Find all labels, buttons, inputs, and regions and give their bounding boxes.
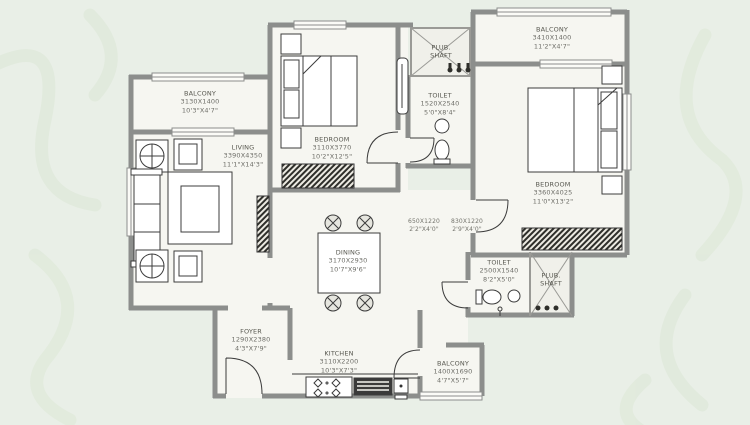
room-name: TOILET xyxy=(421,91,460,99)
room-label-foyer: FOYER 1290X2380 4'3"X7'9" xyxy=(232,327,271,352)
room-label-plub-shaft-right: PLUB. SHAFT xyxy=(540,272,562,289)
room-label-balcony-bottom: BALCONY 1400X1690 4'7"X5'7" xyxy=(434,359,473,384)
room-label-living: LIVING 3390X4350 11'1"X14'3" xyxy=(223,143,263,168)
pipe-symbols xyxy=(448,63,471,73)
room-dim-ft: 2'2"X4'0" xyxy=(408,226,440,234)
room-dim-mm: 2500X1540 xyxy=(480,267,519,275)
room-name: TOILET xyxy=(480,258,519,266)
room-dim-ft: 8'2"X5'0" xyxy=(480,275,519,283)
room-dim-ft: 10'3"X4'7" xyxy=(181,106,220,114)
room-label-bedroom-1: BEDROOM 3110X3770 10'2"X12'5" xyxy=(312,135,352,160)
floor-plan-drawing xyxy=(0,0,750,425)
room-dim-mm: 830X1220 xyxy=(451,218,483,226)
room-label-toilet-bottom: TOILET 2500X1540 8'2"X5'0" xyxy=(480,258,519,283)
room-name: SHAFT xyxy=(430,52,452,60)
hob-icon xyxy=(306,377,352,397)
room-name: FOYER xyxy=(232,327,271,335)
room-name: BALCONY xyxy=(533,25,572,33)
room-label-kitchen: KITCHEN 3110X2200 10'3"X7'3" xyxy=(320,349,359,374)
double-bed-icon xyxy=(528,88,622,172)
room-dim-ft: 4'7"X5'7" xyxy=(434,376,473,384)
room-label-balcony-top-left: BALCONY 3130X1400 10'3"X4'7" xyxy=(181,89,220,114)
nightstand-icon xyxy=(602,176,622,194)
room-dim-mm: 1290X2380 xyxy=(232,336,271,344)
room-name: PLUB. xyxy=(540,272,562,280)
side-table-icon xyxy=(136,250,168,282)
wc-icon xyxy=(434,140,450,164)
room-dim-ft: 11'2"X4'7" xyxy=(533,42,572,50)
room-dim-mm: 3410X1400 xyxy=(533,34,572,42)
room-dim-ft: 4'3"X7'9" xyxy=(232,344,271,352)
room-dim-ft: 10'2"X12'5" xyxy=(312,152,352,160)
room-label-dining: DINING 3170X2930 10'7"X9'6" xyxy=(329,248,368,273)
nightstand-icon xyxy=(281,34,301,54)
room-dim-mm: 3360X4025 xyxy=(533,189,573,197)
armchair-icon xyxy=(174,251,202,282)
room-label-balcony-top-right: BALCONY 3410X1400 11'2"X4'7" xyxy=(533,25,572,50)
room-dim-ft: 5'0"X8'4" xyxy=(421,108,460,116)
pipe-symbols xyxy=(536,306,559,311)
room-dim-ft: 2'9"X4'0" xyxy=(451,226,483,234)
room-dim-mm: 1520X2540 xyxy=(421,100,460,108)
room-dim-mm: 3110X3770 xyxy=(312,144,352,152)
room-label-toilet-top: TOILET 1520X2540 5'0"X8'4" xyxy=(421,91,460,116)
room-dim-mm: 1400X1690 xyxy=(434,368,473,376)
tv-unit-icon xyxy=(257,196,269,252)
room-dim-mm: 3390X4350 xyxy=(223,152,263,160)
room-name: PLUB. xyxy=(430,44,452,52)
room-dim-ft: 11'0"X13'2" xyxy=(533,197,573,205)
wardrobe-icon xyxy=(522,228,622,250)
room-name: LIVING xyxy=(223,143,263,151)
washbasin-icon xyxy=(508,290,520,302)
coffee-table-icon xyxy=(168,172,232,244)
room-dim-mm: 3110X2200 xyxy=(320,358,359,366)
washbasin-icon xyxy=(435,119,449,133)
room-name: BALCONY xyxy=(181,89,220,97)
room-name: SHAFT xyxy=(540,280,562,288)
room-dim-ft: 10'3"X7'3" xyxy=(320,366,359,374)
room-name: BEDROOM xyxy=(312,135,352,143)
nightstand-icon xyxy=(281,128,301,148)
room-dim-ft: 10'7"X9'6" xyxy=(329,265,368,273)
room-name: BEDROOM xyxy=(533,180,573,188)
room-name: BALCONY xyxy=(434,359,473,367)
room-dim-mm: 3170X2930 xyxy=(329,257,368,265)
room-name: DINING xyxy=(329,248,368,256)
room-dim-ft: 11'1"X14'3" xyxy=(223,160,263,168)
wc-icon xyxy=(476,290,501,304)
nightstand-icon xyxy=(602,66,622,84)
room-dim-mm: 3130X1400 xyxy=(181,98,220,106)
passage-dim-label: 830X1220 2'9"X4'0" xyxy=(451,218,483,234)
room-label-plub-shaft-top: PLUB. SHAFT xyxy=(430,44,452,61)
passage-dim-label: 650X1220 2'2"X4'0" xyxy=(408,218,440,234)
room-label-bedroom-2: BEDROOM 3360X4025 11'0"X13'2" xyxy=(533,180,573,205)
floor-plan-page: BALCONY 3130X1400 10'3"X4'7" LIVING 3390… xyxy=(0,0,750,425)
side-table-icon xyxy=(136,140,168,172)
wardrobe-icon xyxy=(282,164,354,188)
armchair-icon xyxy=(174,139,202,170)
room-name: KITCHEN xyxy=(320,349,359,357)
room-dim-mm: 650X1220 xyxy=(408,218,440,226)
double-bed-icon xyxy=(281,56,357,126)
